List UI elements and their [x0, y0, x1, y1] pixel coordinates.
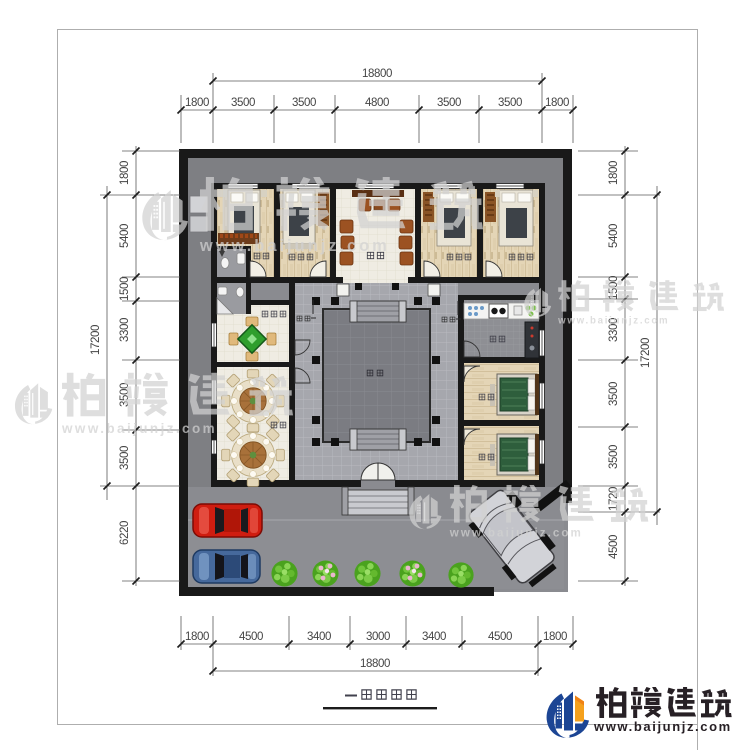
svg-text:4500: 4500	[239, 631, 263, 643]
svg-text:17200: 17200	[640, 338, 652, 368]
svg-text:1800: 1800	[185, 97, 209, 109]
svg-text:6220: 6220	[119, 521, 131, 545]
svg-text:1800: 1800	[185, 631, 209, 643]
svg-text:www.baijunjz.com: www.baijunjz.com	[593, 719, 732, 734]
svg-text:18800: 18800	[360, 658, 390, 670]
svg-text:3400: 3400	[422, 631, 446, 643]
svg-text:3000: 3000	[366, 631, 390, 643]
svg-text:1800: 1800	[608, 161, 620, 185]
svg-text:5400: 5400	[119, 224, 131, 248]
svg-text:3500: 3500	[292, 97, 316, 109]
svg-text:1800: 1800	[119, 161, 131, 185]
svg-text:3500: 3500	[498, 97, 522, 109]
svg-text:3300: 3300	[119, 318, 131, 342]
svg-text:1800: 1800	[543, 631, 567, 643]
svg-text:3500: 3500	[119, 446, 131, 470]
svg-text:17200: 17200	[90, 325, 102, 355]
svg-text:18800: 18800	[362, 68, 392, 80]
svg-text:4800: 4800	[365, 97, 389, 109]
svg-text:3400: 3400	[307, 631, 331, 643]
svg-text:1500: 1500	[119, 277, 131, 301]
svg-text:1800: 1800	[545, 97, 569, 109]
svg-text:3500: 3500	[231, 97, 255, 109]
svg-text:4500: 4500	[488, 631, 512, 643]
svg-text:3500: 3500	[608, 445, 620, 469]
svg-text:3500: 3500	[437, 97, 461, 109]
svg-text:4500: 4500	[608, 535, 620, 559]
svg-text:3500: 3500	[608, 382, 620, 406]
svg-text:5400: 5400	[608, 224, 620, 248]
